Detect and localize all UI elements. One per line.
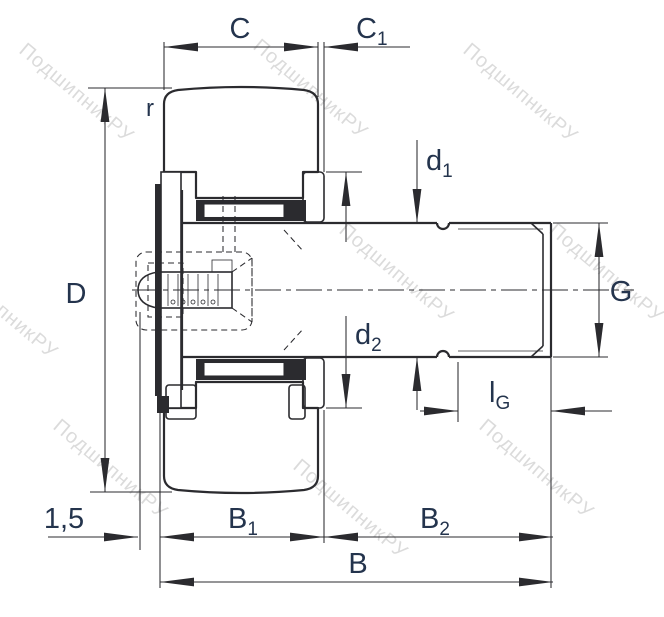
dim-label-r: r bbox=[146, 95, 154, 122]
chamfer-bottom bbox=[531, 346, 543, 357]
end-washer-top bbox=[303, 172, 324, 222]
grease-fitting-detail bbox=[136, 196, 252, 330]
grease-nipple-step bbox=[212, 260, 232, 272]
chamfer-top bbox=[531, 223, 543, 234]
detail-boundary-box bbox=[136, 252, 252, 330]
needle-top-face bbox=[204, 204, 284, 218]
part-geometry bbox=[132, 87, 634, 493]
watermark-text: ПодшипникРУ bbox=[475, 415, 598, 523]
dim-r: r bbox=[146, 95, 154, 122]
relief-groove-bottom bbox=[437, 351, 449, 357]
technical-drawing: ПодшипникРУ ПодшипникРУ ПодшипникРУ Подш… bbox=[0, 0, 664, 617]
end-washer-bottom bbox=[303, 358, 324, 408]
watermark-text: ПодшипникРУ bbox=[15, 39, 138, 147]
hidden-chamfer-bottom-right bbox=[284, 328, 304, 350]
dim-B1: B1 bbox=[160, 410, 324, 588]
watermark-text: ПодшипникРУ bbox=[335, 219, 458, 327]
outer-ring-top-half bbox=[164, 87, 318, 198]
dim-label-lG: lG bbox=[489, 377, 510, 414]
seal-lip-bottom-left bbox=[157, 396, 169, 413]
dim-label-C: C bbox=[230, 13, 251, 45]
watermark-text: ПодшипникРУ bbox=[459, 39, 582, 147]
needle-bottom-face bbox=[204, 363, 284, 377]
watermark-text: ПодшипникРУ bbox=[0, 255, 62, 363]
dim-label-C1: C1 bbox=[356, 13, 388, 50]
dim-label-B1: B1 bbox=[228, 503, 258, 540]
dim-lG: lG bbox=[420, 357, 612, 588]
dim-C1: C1 bbox=[324, 13, 410, 51]
dim-label-G: G bbox=[610, 276, 633, 308]
dim-label-B2: B2 bbox=[420, 503, 450, 540]
dim-label-d1: d1 bbox=[426, 145, 453, 182]
watermark-text: ПодшипникРУ bbox=[249, 35, 372, 143]
dim-label-1-5: 1,5 bbox=[44, 503, 84, 535]
watermark-layer: ПодшипникРУ ПодшипникРУ ПодшипникРУ Подш… bbox=[0, 35, 664, 563]
dim-label-D: D bbox=[66, 278, 87, 310]
watermark-text: ПодшипникРУ bbox=[545, 219, 664, 327]
dim-B: B bbox=[160, 548, 553, 586]
dim-d1: d1 bbox=[413, 140, 453, 410]
dim-label-d2: d2 bbox=[355, 319, 382, 356]
hidden-chamfer-top-right bbox=[284, 230, 304, 252]
dim-label-B: B bbox=[348, 548, 367, 580]
relief-groove-top bbox=[437, 223, 449, 229]
